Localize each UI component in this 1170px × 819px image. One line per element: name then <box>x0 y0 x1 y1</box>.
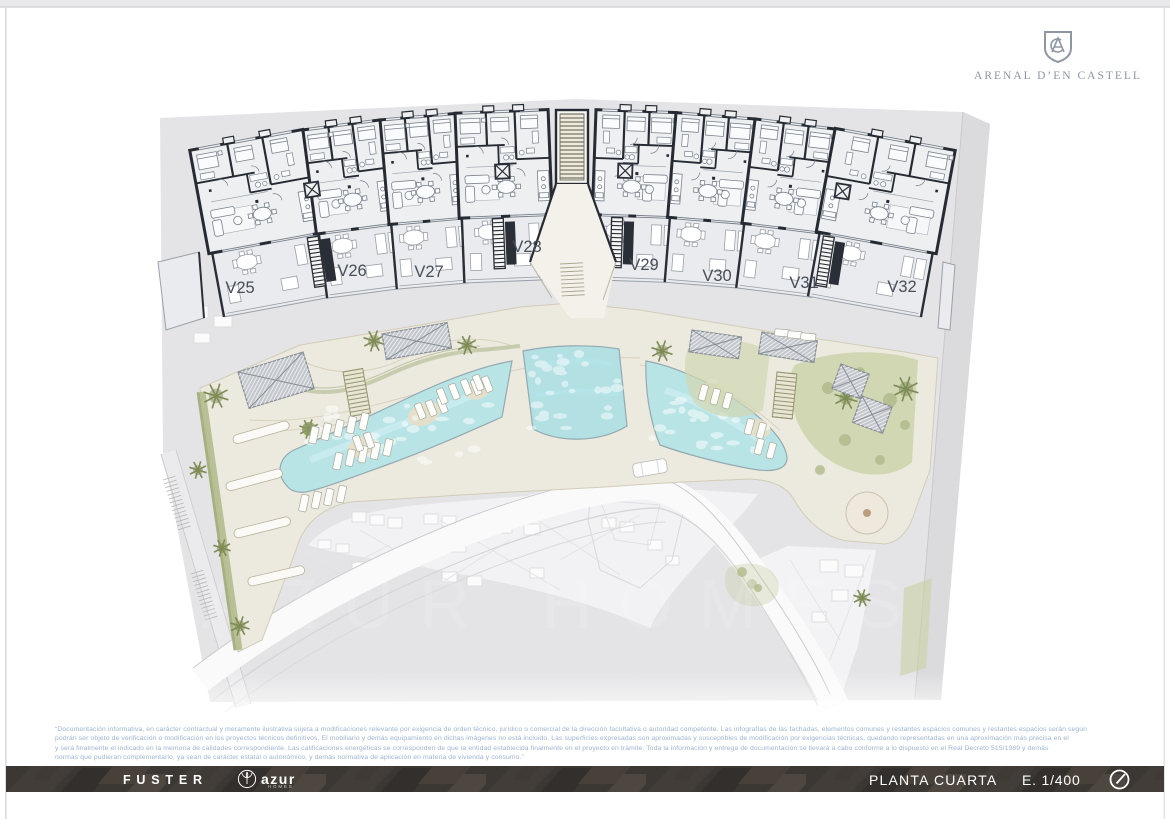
svg-text:V27: V27 <box>414 263 443 281</box>
svg-text:V32: V32 <box>887 278 916 296</box>
svg-text:V30: V30 <box>702 267 731 285</box>
svg-text:V29: V29 <box>629 256 658 274</box>
svg-text:AZUR HOMES: AZUR HOMES <box>202 565 929 643</box>
svg-text:V31: V31 <box>789 274 818 292</box>
svg-text:V26: V26 <box>337 262 366 280</box>
svg-text:V28: V28 <box>512 238 541 256</box>
svg-text:V25: V25 <box>225 279 254 297</box>
